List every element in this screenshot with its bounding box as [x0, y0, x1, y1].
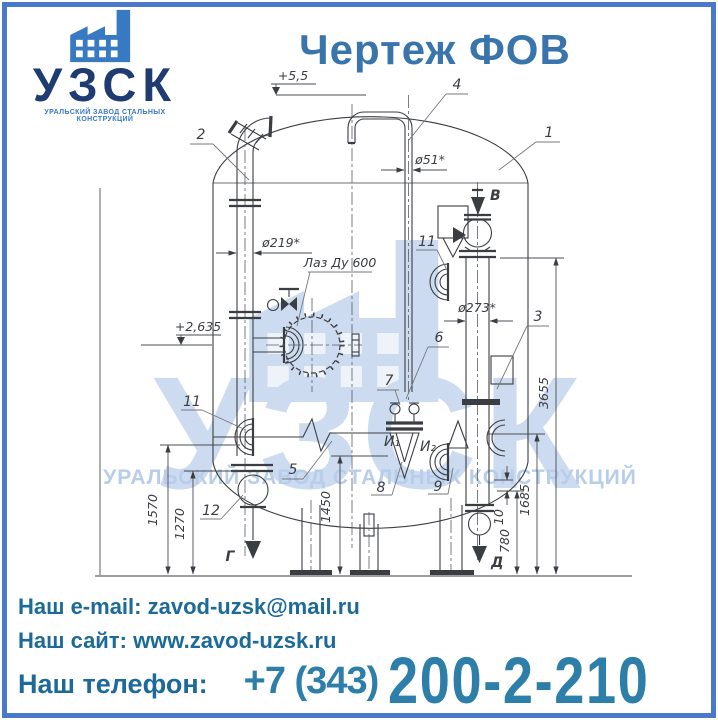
page: УЗСК УРАЛЬСКИЙ ЗАВОД СТАЛЬНЫХ КОНСТРУКЦИ… — [0, 0, 718, 720]
callout-2: 2 — [190, 127, 249, 180]
callout-1: 1 — [499, 125, 560, 170]
dim-1270: 1270 — [172, 508, 187, 540]
item-12: 12 — [202, 503, 220, 519]
item-11: 11 — [183, 394, 201, 410]
item-6: 6 — [435, 330, 444, 346]
dim-3655: 3655 — [536, 377, 551, 409]
flow-arrow-g — [245, 541, 261, 559]
dim-dia-273: ø273* — [457, 300, 496, 315]
phone-number: 200-2-210 — [388, 652, 650, 708]
dim-780: 780 — [497, 529, 512, 553]
item-2: 2 — [197, 127, 206, 143]
item-7: 7 — [385, 373, 394, 389]
site-value: www.zavod-uzsk.ru — [133, 628, 336, 653]
dome-stub — [229, 121, 266, 150]
dim-10: 10 — [491, 509, 506, 525]
elevation-middle: +2,635 — [175, 319, 221, 334]
flow-label-g: Г — [226, 549, 236, 565]
page-title: Чертеж ФОВ — [255, 26, 615, 74]
phone-line: Наш телефон: +7 (343) 200-2-210 — [18, 652, 707, 708]
phone-label: Наш телефон: — [18, 669, 208, 708]
item-4: 4 — [453, 77, 462, 93]
tap-label-i1: И₁ — [384, 434, 400, 450]
phone-prefix: +7 (343) — [244, 660, 379, 708]
item-8: 8 — [377, 480, 386, 496]
flow-arrow-v — [471, 197, 485, 215]
site-label: Наш сайт: — [18, 628, 127, 653]
dim-1450: 1450 — [318, 491, 333, 523]
watermark-tagline: УРАЛЬСКИЙ ЗАВОД СТАЛЬНЫХ КОНСТРУКЦИЙ — [103, 465, 637, 489]
flow-label-d: Д — [490, 555, 503, 571]
flow-arrow-d — [472, 546, 487, 563]
manhole-label: Лаз Ду 600 — [303, 255, 377, 270]
item-11b: 11 — [418, 234, 436, 250]
email-value: zavod-uzsk@mail.ru — [148, 594, 360, 619]
email-label: Наш e-mail: — [18, 594, 141, 619]
tap-label-i2: И₂ — [420, 439, 436, 455]
callout-4: 4 — [409, 77, 468, 140]
flow-label-v: В — [490, 188, 501, 204]
dim-1570: 1570 — [145, 494, 160, 526]
item-1: 1 — [545, 125, 554, 141]
site-line: Наш сайт: www.zavod-uzsk.ru — [18, 628, 336, 654]
dim-dia-219: ø219* — [261, 235, 300, 250]
item-9: 9 — [434, 479, 443, 495]
dim-dia-51: ø51* — [414, 152, 445, 167]
item-3: 3 — [534, 309, 543, 325]
logo-tagline: УРАЛЬСКИЙ ЗАВОД СТАЛЬНЫХ КОНСТРУКЦИЙ — [20, 109, 190, 123]
email-line: Наш e-mail: zavod-uzsk@mail.ru — [18, 594, 360, 620]
company-logo: УЗСК УРАЛЬСКИЙ ЗАВОД СТАЛЬНЫХ КОНСТРУКЦИ… — [20, 6, 190, 123]
item-5: 5 — [289, 462, 298, 478]
watermark: УЗСК УРАЛЬСКИЙ ЗАВОД СТАЛЬНЫХ КОНСТРУКЦИ… — [103, 240, 637, 522]
logo-name: УЗСК — [20, 64, 190, 106]
factory-icon — [66, 6, 144, 64]
dim-1685: 1685 — [517, 484, 532, 516]
